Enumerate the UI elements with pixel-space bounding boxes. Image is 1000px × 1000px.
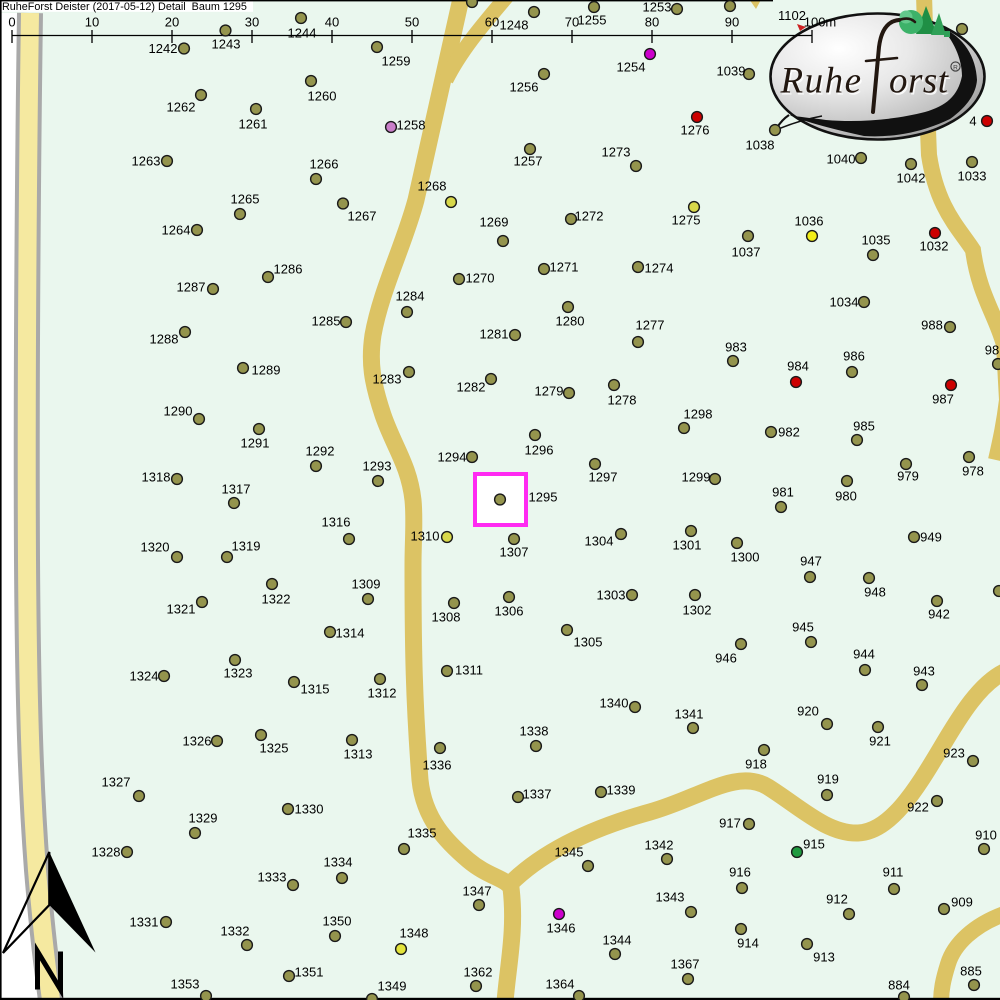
svg-text:1283: 1283: [373, 372, 402, 387]
svg-text:946: 946: [715, 651, 737, 666]
svg-text:1258: 1258: [397, 118, 426, 133]
svg-text:1248: 1248: [500, 18, 529, 33]
svg-text:1349: 1349: [378, 979, 407, 994]
svg-text:944: 944: [853, 647, 875, 662]
svg-text:1264: 1264: [162, 223, 191, 238]
svg-text:1362: 1362: [464, 965, 493, 980]
svg-text:1350: 1350: [323, 914, 352, 929]
svg-text:1286: 1286: [274, 262, 303, 277]
svg-text:Ruhe: Ruhe: [780, 61, 863, 102]
svg-text:1329: 1329: [189, 811, 218, 826]
svg-text:1288: 1288: [150, 332, 179, 347]
svg-text:1294: 1294: [438, 450, 467, 465]
svg-text:1338: 1338: [520, 724, 549, 739]
svg-text:1279: 1279: [535, 384, 564, 399]
svg-text:1301: 1301: [673, 538, 702, 553]
svg-text:4: 4: [969, 114, 976, 129]
svg-text:980: 980: [835, 489, 857, 504]
svg-text:1326: 1326: [183, 734, 212, 749]
svg-text:1035: 1035: [862, 233, 891, 248]
svg-text:988: 988: [921, 318, 943, 333]
svg-text:30: 30: [245, 15, 259, 30]
svg-text:1282: 1282: [457, 380, 486, 395]
svg-text:1257: 1257: [514, 154, 543, 169]
svg-text:982: 982: [778, 425, 800, 440]
svg-text:1290: 1290: [164, 404, 193, 419]
svg-text:1319: 1319: [232, 539, 261, 554]
svg-text:1042: 1042: [897, 171, 926, 186]
svg-text:0: 0: [8, 15, 15, 30]
svg-text:947: 947: [800, 554, 822, 569]
svg-text:1037: 1037: [732, 245, 761, 260]
svg-text:1244: 1244: [288, 26, 317, 41]
svg-text:1303: 1303: [597, 588, 626, 603]
svg-text:1281: 1281: [480, 327, 509, 342]
svg-text:1039: 1039: [717, 64, 746, 79]
svg-text:987: 987: [932, 392, 954, 407]
svg-text:1284: 1284: [396, 289, 425, 304]
svg-text:1297: 1297: [589, 470, 618, 485]
svg-text:1306: 1306: [495, 604, 524, 619]
svg-text:1266: 1266: [310, 157, 339, 172]
svg-text:909: 909: [951, 895, 973, 910]
svg-text:1364: 1364: [546, 977, 575, 992]
svg-text:1302: 1302: [683, 603, 712, 618]
svg-text:1275: 1275: [672, 213, 701, 228]
svg-text:1320: 1320: [141, 540, 170, 555]
svg-text:orst: orst: [889, 61, 950, 102]
svg-text:1342: 1342: [645, 838, 674, 853]
svg-text:1267: 1267: [348, 209, 377, 224]
svg-text:1310: 1310: [411, 529, 440, 544]
svg-text:1293: 1293: [363, 459, 392, 474]
svg-text:1314: 1314: [336, 626, 365, 641]
svg-text:1280: 1280: [556, 314, 585, 329]
svg-text:1034: 1034: [830, 295, 859, 310]
svg-text:R: R: [953, 65, 958, 72]
svg-text:921: 921: [869, 734, 891, 749]
svg-text:916: 916: [729, 865, 751, 880]
svg-text:1346: 1346: [547, 921, 576, 936]
svg-text:983: 983: [725, 340, 747, 355]
svg-text:1032: 1032: [920, 239, 949, 254]
svg-text:1347: 1347: [463, 884, 492, 899]
svg-text:1308: 1308: [432, 610, 461, 625]
svg-text:911: 911: [883, 865, 904, 880]
svg-text:1269: 1269: [480, 215, 509, 230]
svg-text:1271: 1271: [550, 260, 579, 275]
svg-text:1298: 1298: [684, 407, 713, 422]
svg-text:1305: 1305: [574, 635, 603, 650]
svg-text:913: 913: [813, 950, 835, 965]
svg-text:919: 919: [817, 772, 839, 787]
svg-text:1296: 1296: [525, 443, 554, 458]
svg-text:1322: 1322: [262, 592, 291, 607]
svg-text:1318: 1318: [142, 470, 171, 485]
svg-text:922: 922: [907, 800, 929, 815]
svg-text:885: 885: [960, 964, 982, 979]
svg-text:942: 942: [928, 607, 950, 622]
svg-text:1348: 1348: [400, 926, 429, 941]
svg-text:1256: 1256: [510, 80, 539, 95]
svg-text:98: 98: [985, 343, 999, 358]
svg-text:1309: 1309: [352, 577, 381, 592]
svg-text:1311: 1311: [455, 663, 483, 678]
svg-text:1351: 1351: [295, 965, 324, 980]
svg-text:1317: 1317: [222, 482, 251, 497]
svg-text:984: 984: [787, 359, 809, 374]
svg-text:1033: 1033: [958, 169, 987, 184]
svg-text:RuheForst Deister (2017-05-12): RuheForst Deister (2017-05-12) Detail Ba…: [2, 1, 247, 13]
svg-text:1313: 1313: [344, 747, 373, 762]
svg-text:1341: 1341: [675, 707, 704, 722]
svg-text:910: 910: [975, 828, 997, 843]
svg-text:1278: 1278: [608, 393, 637, 408]
svg-text:1336: 1336: [423, 758, 452, 773]
svg-text:1300: 1300: [731, 550, 760, 565]
svg-text:20: 20: [165, 15, 179, 30]
svg-text:1285: 1285: [312, 314, 341, 329]
svg-text:1254: 1254: [617, 60, 646, 75]
svg-text:1265: 1265: [231, 192, 260, 207]
svg-text:80: 80: [645, 15, 659, 30]
svg-text:1270: 1270: [466, 271, 495, 286]
svg-text:1272: 1272: [575, 209, 604, 224]
svg-text:1343: 1343: [656, 890, 685, 905]
svg-text:1295: 1295: [529, 490, 558, 505]
svg-text:1331: 1331: [130, 915, 159, 930]
svg-text:943: 943: [913, 664, 935, 679]
svg-text:1102: 1102: [778, 8, 806, 23]
svg-text:985: 985: [853, 419, 875, 434]
svg-text:1345: 1345: [555, 845, 584, 860]
svg-text:10: 10: [85, 15, 99, 30]
svg-text:979: 979: [897, 469, 919, 484]
svg-text:1328: 1328: [92, 845, 121, 860]
svg-text:50: 50: [405, 15, 419, 30]
svg-text:100m: 100m: [804, 15, 837, 30]
svg-text:40: 40: [325, 15, 339, 30]
svg-text:949: 949: [920, 530, 942, 545]
svg-text:1325: 1325: [260, 741, 289, 756]
svg-text:1312: 1312: [368, 686, 397, 701]
svg-text:1324: 1324: [130, 669, 159, 684]
svg-text:986: 986: [843, 349, 865, 364]
svg-text:1292: 1292: [306, 444, 335, 459]
svg-text:920: 920: [797, 704, 819, 719]
svg-text:1291: 1291: [241, 436, 270, 451]
svg-text:1276: 1276: [681, 123, 710, 138]
svg-text:1040: 1040: [827, 152, 856, 167]
svg-text:1273: 1273: [602, 145, 631, 160]
svg-text:1262: 1262: [167, 100, 196, 115]
svg-text:1255: 1255: [578, 13, 607, 28]
svg-text:1263: 1263: [132, 154, 161, 169]
svg-text:945: 945: [792, 620, 814, 635]
svg-text:1367: 1367: [671, 957, 700, 972]
svg-text:1340: 1340: [600, 696, 629, 711]
svg-text:1323: 1323: [224, 666, 253, 681]
svg-text:1304: 1304: [585, 534, 614, 549]
svg-text:1334: 1334: [324, 855, 353, 870]
svg-text:90: 90: [725, 15, 739, 30]
svg-text:915: 915: [803, 837, 825, 852]
svg-text:884: 884: [888, 978, 910, 993]
svg-text:1259: 1259: [382, 54, 411, 69]
svg-text:1287: 1287: [177, 280, 206, 295]
svg-text:1327: 1327: [102, 775, 131, 790]
svg-text:1335: 1335: [408, 826, 437, 841]
svg-text:1321: 1321: [167, 602, 196, 617]
svg-text:912: 912: [826, 892, 848, 907]
svg-text:1299: 1299: [682, 470, 711, 485]
svg-text:1344: 1344: [603, 933, 632, 948]
svg-text:1307: 1307: [500, 545, 529, 560]
svg-text:1253: 1253: [643, 0, 672, 15]
svg-text:948: 948: [864, 585, 886, 600]
svg-text:918: 918: [745, 757, 767, 772]
svg-text:1332: 1332: [221, 924, 250, 939]
svg-text:1315: 1315: [301, 682, 330, 697]
svg-text:981: 981: [772, 485, 794, 500]
svg-text:1242: 1242: [149, 41, 178, 56]
svg-text:923: 923: [943, 746, 965, 761]
svg-text:1268: 1268: [418, 179, 447, 194]
svg-text:1036: 1036: [795, 214, 824, 229]
svg-text:1260: 1260: [308, 89, 337, 104]
svg-text:60: 60: [485, 15, 499, 30]
svg-text:1330: 1330: [295, 802, 324, 817]
svg-text:1038: 1038: [746, 138, 775, 153]
svg-text:1274: 1274: [645, 261, 674, 276]
svg-text:1339: 1339: [607, 783, 636, 798]
svg-text:1289: 1289: [252, 363, 281, 378]
svg-text:1261: 1261: [239, 117, 268, 132]
svg-text:1316: 1316: [322, 515, 351, 530]
svg-text:1353: 1353: [171, 977, 200, 992]
svg-text:978: 978: [962, 464, 984, 479]
svg-text:914: 914: [737, 936, 759, 951]
svg-text:1333: 1333: [258, 870, 287, 885]
svg-text:917: 917: [719, 816, 741, 831]
svg-text:1337: 1337: [523, 787, 552, 802]
svg-text:1277: 1277: [636, 318, 665, 333]
svg-text:1243: 1243: [212, 37, 241, 52]
